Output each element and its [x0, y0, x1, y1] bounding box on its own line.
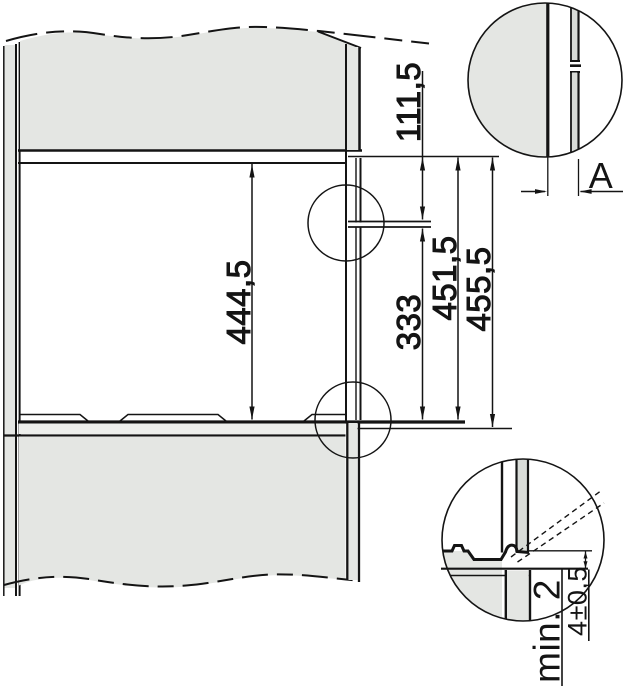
detail-view-bottom: min. 2 4±0,5	[441, 458, 604, 686]
top-panel	[6, 27, 429, 151]
dim-label-gap-a: A	[589, 155, 614, 196]
dim-label-bottom-gap: 4±0,5	[563, 566, 593, 636]
dim-outer-depth: 455,5	[460, 158, 497, 428]
dim-label-inner-depth: 451,5	[426, 235, 463, 320]
dim-niche-height: 444,5	[220, 164, 257, 420]
bottom-panel	[4, 422, 361, 588]
front-rail-top	[346, 44, 360, 421]
detail-view-top: A	[465, 0, 623, 196]
dim-top-clearance: 111,5	[390, 62, 427, 220]
front-trim	[356, 158, 361, 420]
drawing-canvas: 444,5 111,5 333 451,5 455,5	[0, 0, 625, 687]
bottom-shelf	[4, 424, 346, 436]
dim-bottom-gap	[584, 552, 588, 569]
dim-label-outer-depth: 455,5	[460, 246, 497, 331]
dim-label-top-clearance: 111,5	[390, 62, 427, 142]
mounting-bracket	[348, 222, 431, 228]
dim-label-bracket-to-bottom: 333	[390, 294, 427, 351]
dim-label-niche-height: 444,5	[220, 259, 257, 344]
rear-panel	[4, 42, 20, 596]
dim-label-front-gap: min. 2	[527, 579, 568, 683]
dim-bracket-to-bottom: 333	[390, 229, 427, 420]
dim-inner-depth: 451,5	[426, 158, 463, 420]
installation-drawing: 444,5 111,5 333 451,5 455,5	[0, 0, 625, 687]
